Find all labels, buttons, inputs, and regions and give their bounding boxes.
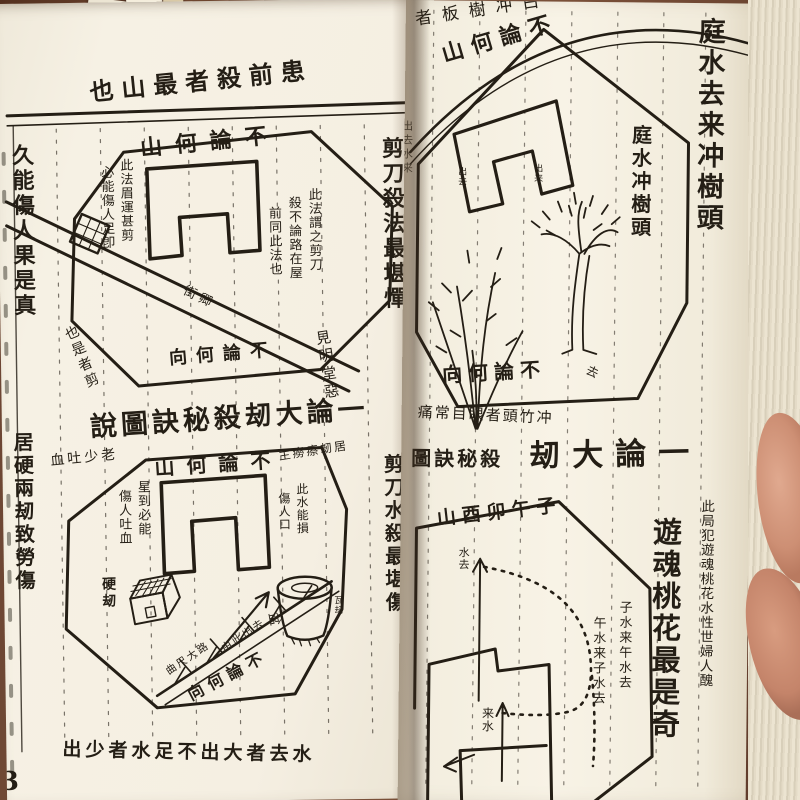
water-out-label: 水去 <box>458 547 470 597</box>
water-in-label: 来水 <box>481 707 494 762</box>
octagon1-note-left-b: 必能傷人足卽 <box>99 165 114 325</box>
dotted-water-path <box>483 567 593 716</box>
right-book-page: 者板樹冲白 山何論不 庭水冲樹頭 庭水去来冲樹頭 出去水来 出去 出来 去 向何… <box>398 0 754 800</box>
octagon1-note-right-c: 前同此法也 <box>267 206 282 346</box>
hard-house-icon <box>127 574 183 624</box>
left-book-page: 也山最者殺前患 山何論不 久能傷人果是真 剪刀殺法最堪憚 此法眉運甚剪 必能傷人… <box>0 0 445 800</box>
book-gutter-shadow <box>392 0 430 800</box>
shrub-sketch <box>428 247 524 429</box>
octagon2-note-a: 星到必能 <box>136 480 151 590</box>
courtyard-edge-column: 庭水冲樹頭 <box>629 124 651 309</box>
octagon1-note-right-b: 殺不論路在屋 <box>287 196 302 356</box>
octagon1-note-left-a: 此法眉運甚剪 <box>118 158 133 318</box>
left-outer-column-2: 居硬兩刼致勞傷 <box>12 432 36 707</box>
octagon2-note-b: 傷人吐血 <box>117 489 132 599</box>
tree-label: 出来 <box>532 163 541 203</box>
octagon2-note-d: 傷人口 <box>278 492 291 572</box>
book-photo: 也山最者殺前患 山何論不 久能傷人果是真 剪刀殺法最堪憚 此法眉運甚剪 必能傷人… <box>0 0 800 800</box>
basin-label: 盆 <box>265 611 281 626</box>
tree-sketch <box>530 192 620 354</box>
octagon2-note-c: 此水能損 <box>296 483 309 583</box>
left-outer-column: 久能傷人果是真 <box>10 144 36 434</box>
water-left-column: 午水来子水去 <box>590 616 605 776</box>
water-right-column: 子水来午水去 <box>616 600 631 760</box>
basin-side-label: 瓦刼 <box>332 595 341 625</box>
octagon1-note-right-a: 此法謂之剪刀 <box>307 187 322 347</box>
right-section-heading-large: 刼大論一 <box>529 436 730 474</box>
water-in-arrow <box>496 703 509 781</box>
page-number: 3 <box>1 768 19 796</box>
plant-label: 出去 <box>456 167 465 207</box>
hard-house-label: 硬刼 <box>101 576 116 626</box>
wandering-soul-column: 遊魂桃花最是奇 <box>648 517 680 792</box>
right-outer-large-column: 庭水去来冲樹頭 <box>693 17 723 312</box>
